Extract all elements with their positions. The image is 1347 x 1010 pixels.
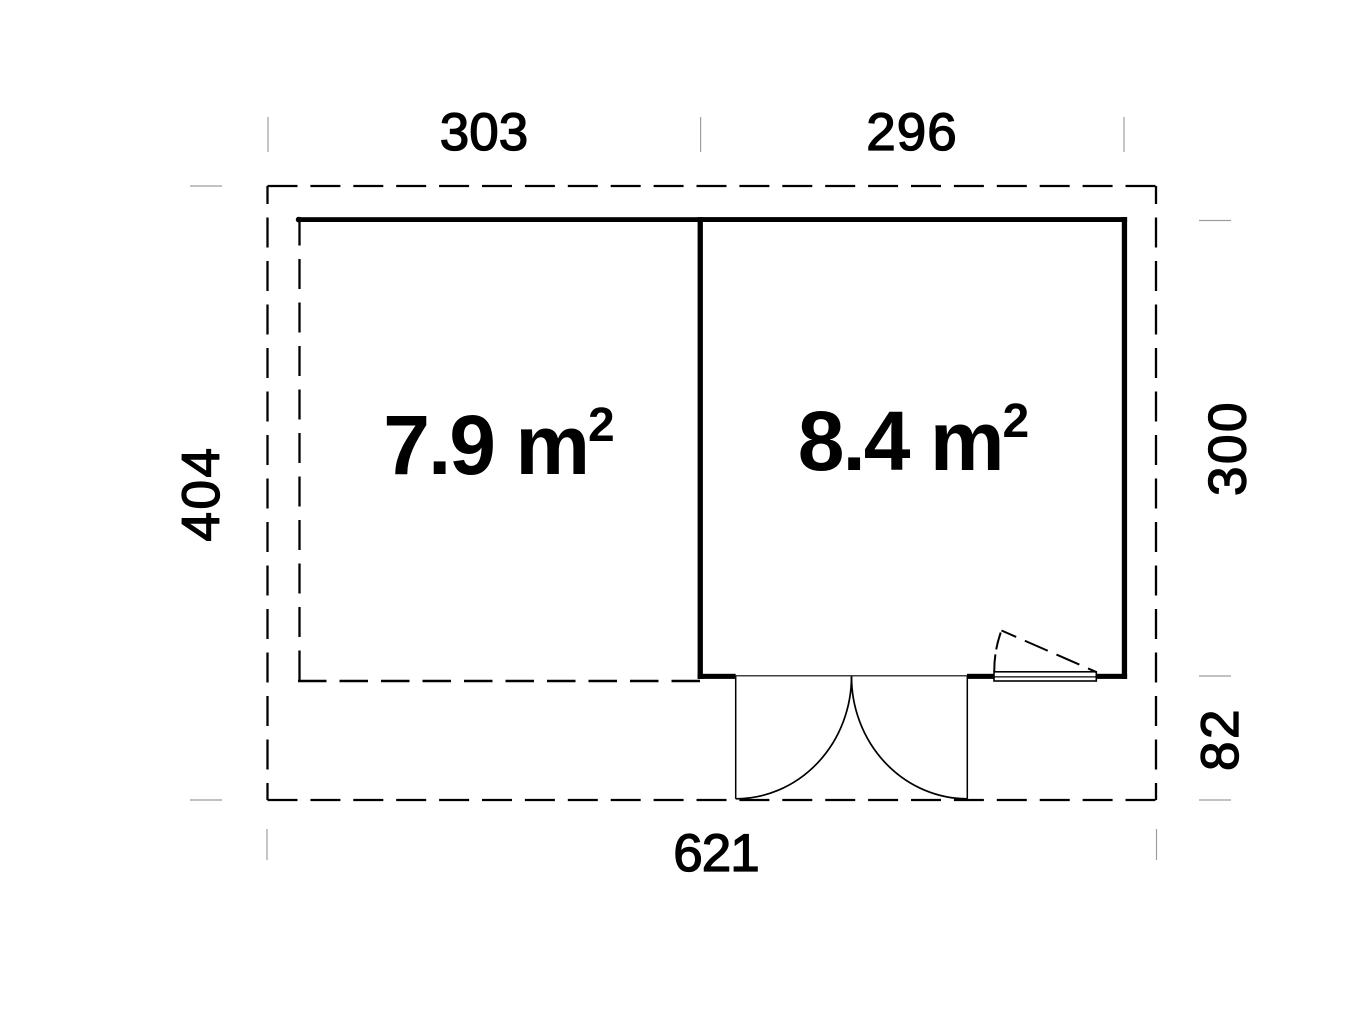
svg-text:296: 296 — [866, 103, 957, 162]
svg-text:82: 82 — [1191, 707, 1250, 771]
svg-text:300: 300 — [1199, 400, 1258, 496]
svg-text:7.9 m2: 7.9 m2 — [383, 398, 613, 492]
svg-text:303: 303 — [440, 103, 528, 162]
svg-text:621: 621 — [673, 824, 758, 883]
svg-text:8.4 m2: 8.4 m2 — [798, 394, 1028, 488]
svg-text:404: 404 — [172, 446, 231, 542]
